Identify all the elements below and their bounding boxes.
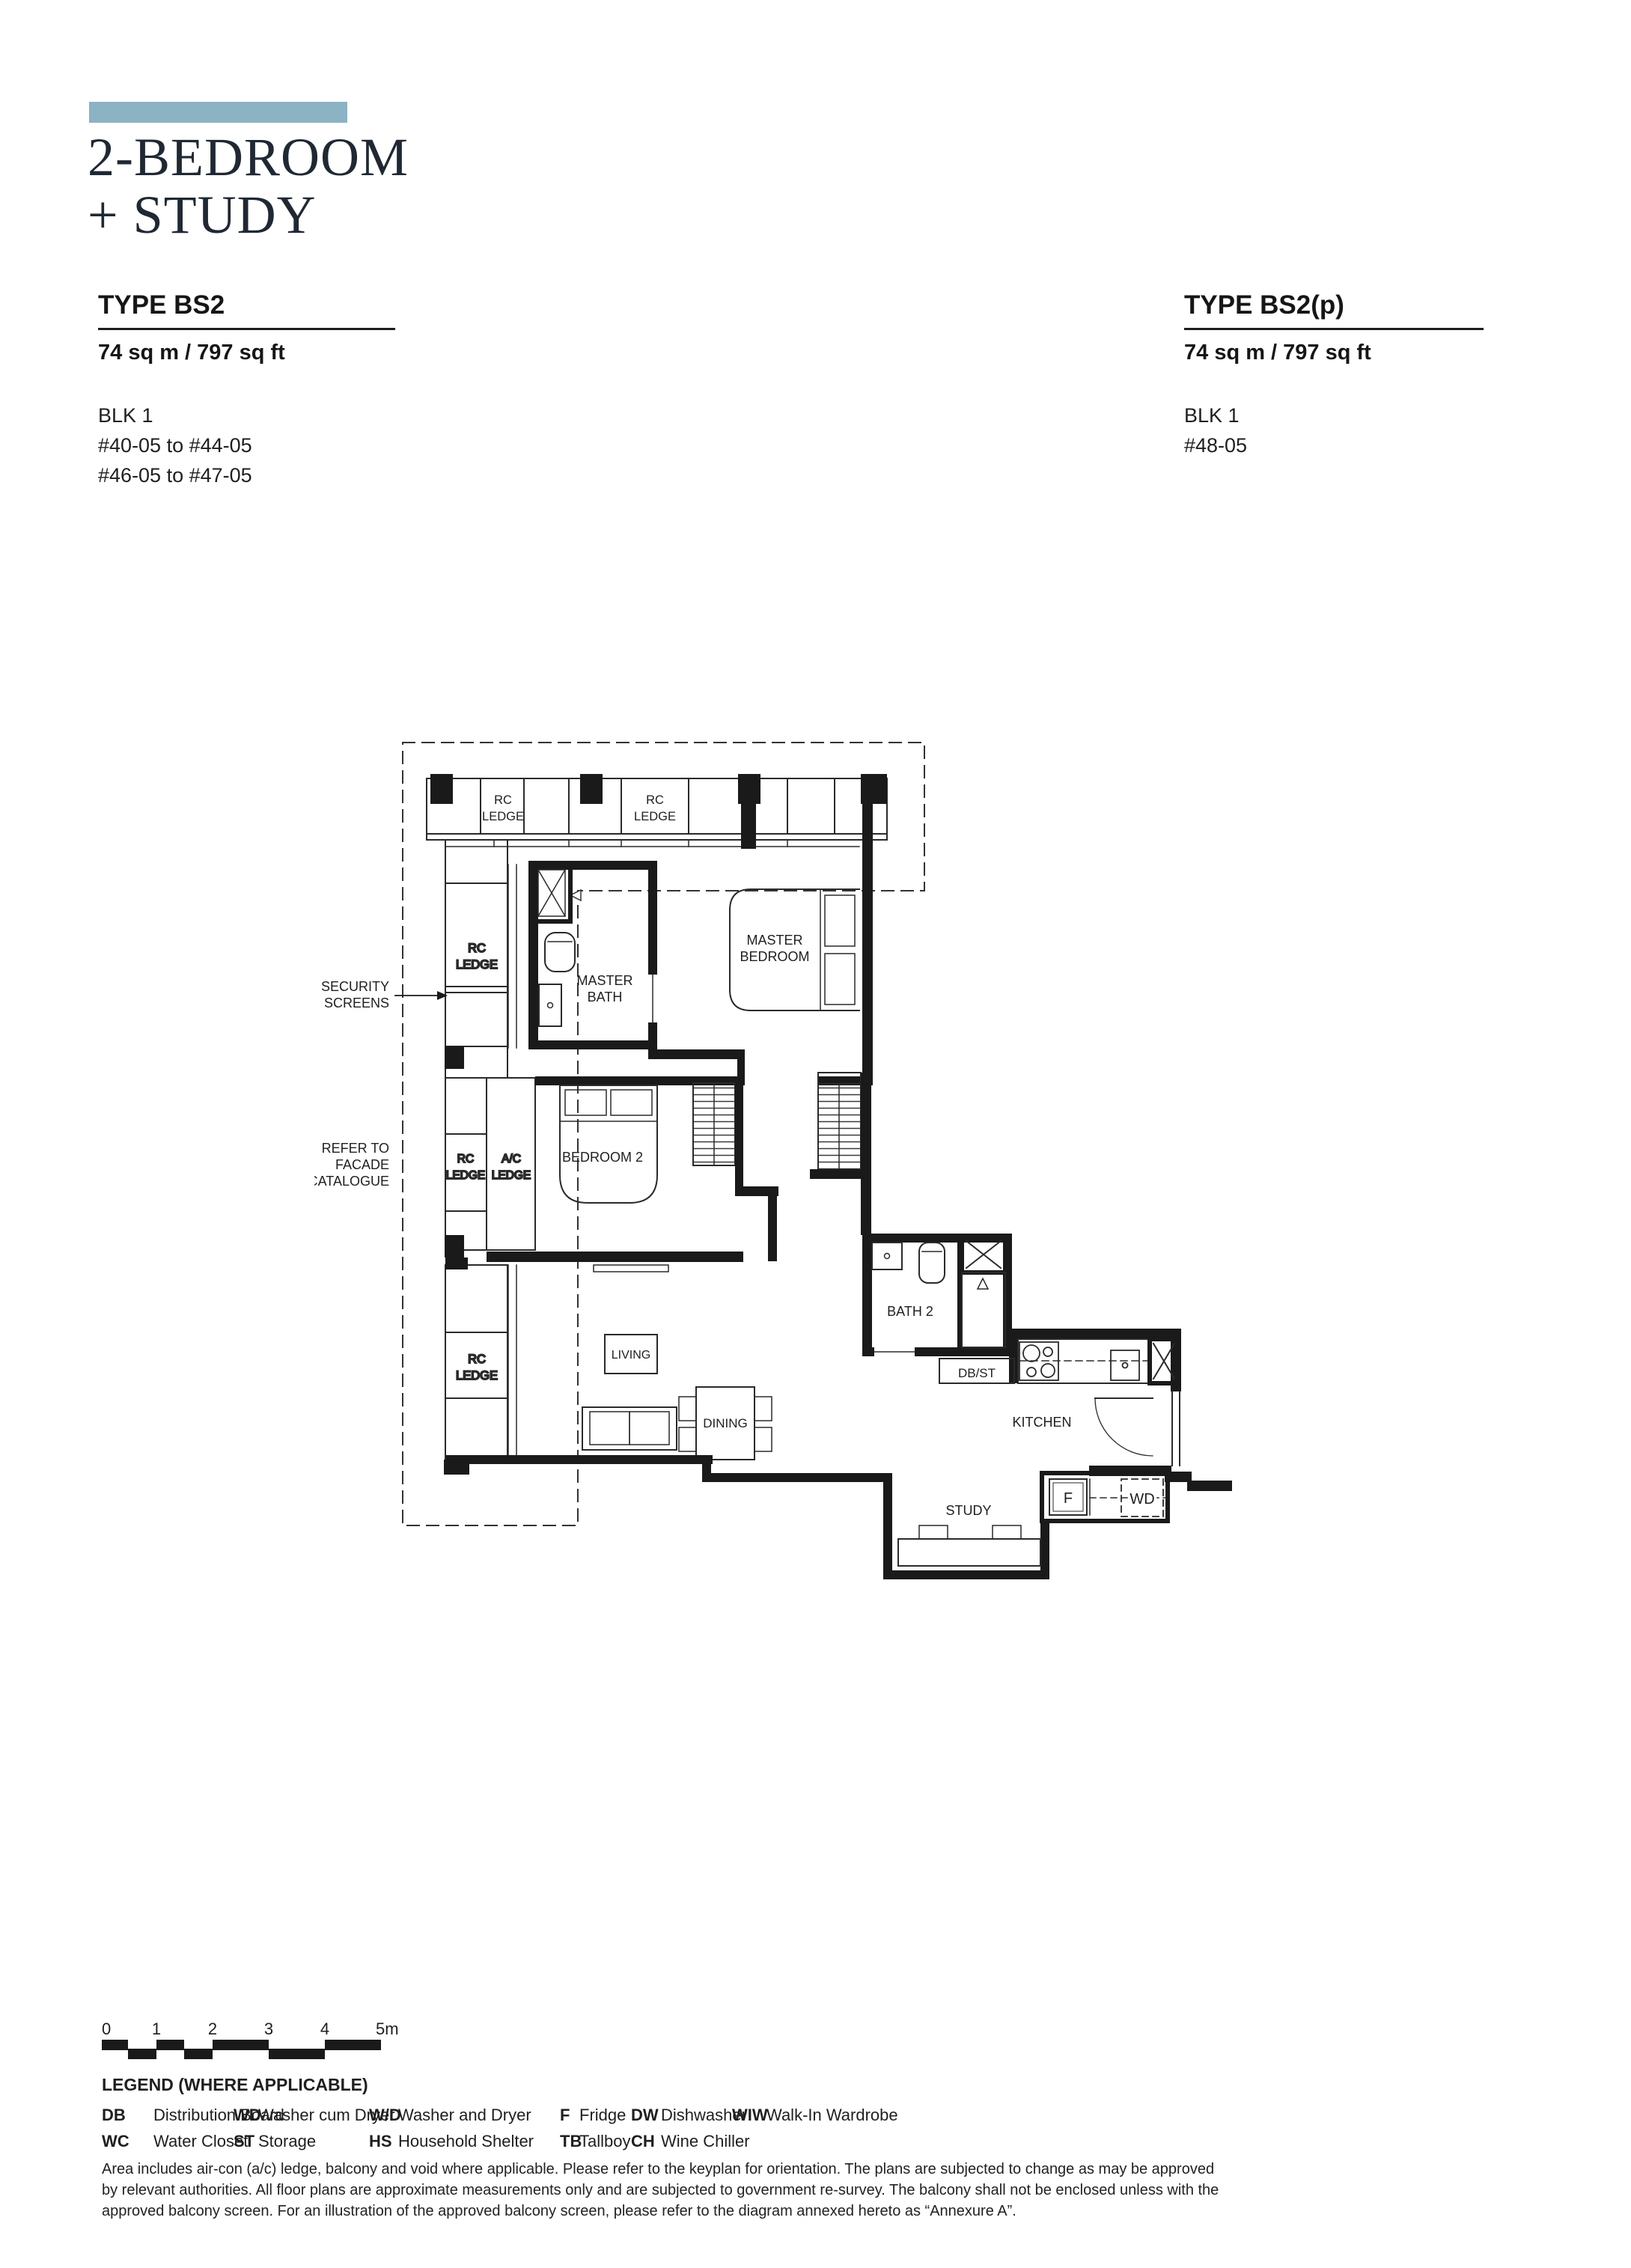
- fridge-label: F: [1064, 1490, 1073, 1507]
- legend-column: WIWWalk-In Wardrobe: [732, 2102, 898, 2128]
- scale-tick-1: 1: [152, 2019, 161, 2038]
- desk-chair-icon: [993, 1525, 1021, 1539]
- page-title: 2-BEDROOM+ STUDY: [88, 129, 409, 244]
- rc-ledge-top-right-label2: LEDGE: [634, 810, 676, 823]
- rc-ledge-top-left-label2: LEDGE: [482, 810, 524, 823]
- rc-ledge-top-right-label: RC: [646, 793, 664, 807]
- toilet-icon: [919, 1243, 945, 1283]
- appliance-cabinet: F WD: [1042, 1472, 1232, 1521]
- scale-tick-5m: 5m: [376, 2019, 399, 2038]
- sink-icon: [872, 1243, 902, 1269]
- floor-plan-drawing: RC LEDGE RC LEDGE RC LEDGE RC LEDGE A/C …: [314, 704, 1262, 1639]
- type-bs2p-heading: TYPE BS2(p): [1184, 290, 1484, 320]
- floorplan-page: 2-BEDROOM+ STUDY TYPE BS2 74 sq m / 797 …: [0, 0, 1631, 2268]
- facade-note-label3: CATALOGUE: [314, 1174, 389, 1189]
- security-screens-label2: SCREENS: [324, 996, 389, 1010]
- master-bedroom-label: MASTER: [746, 933, 802, 948]
- rc-ledge-left-upper-label: RC: [468, 942, 486, 955]
- left-ledges: RC LEDGE RC LEDGE A/C LEDGE RC LEDGE: [444, 840, 535, 1475]
- legend-abbr: W/D: [369, 2102, 398, 2128]
- legend-abbr: ST: [234, 2128, 258, 2154]
- legend-abbr: HS: [369, 2128, 398, 2154]
- type-bs2p-units-1: #48-05: [1184, 434, 1484, 457]
- spec-type-bs2: TYPE BS2 74 sq m / 797 sq ft BLK 1 #40-0…: [98, 290, 395, 487]
- washer-dryer-label: WD: [1129, 1491, 1154, 1508]
- study-label: STUDY: [945, 1503, 991, 1518]
- study: STUDY: [898, 1503, 1040, 1566]
- facade-note-label2: FACADE: [335, 1157, 389, 1172]
- legend-desc: Household Shelter: [398, 2132, 534, 2150]
- spec-type-bs2p: TYPE BS2(p) 74 sq m / 797 sq ft BLK 1 #4…: [1184, 290, 1484, 457]
- rc-ledge-band: RC LEDGE RC LEDGE: [427, 774, 887, 849]
- desk-chair-icon: [919, 1525, 948, 1539]
- ac-ledge-label: A/C: [502, 1153, 521, 1165]
- rc-ledge-left-lower-label2: LEDGE: [456, 1369, 498, 1383]
- kitchen-label: KITCHEN: [1012, 1415, 1071, 1430]
- legend-abbr: WD: [234, 2102, 258, 2128]
- sofa-icon: [582, 1407, 677, 1450]
- scale-bar: 0 1 2 3 4 5m: [100, 2015, 430, 2069]
- ac-ledge-label2: LEDGE: [492, 1169, 531, 1182]
- rc-ledge-top-left-label: RC: [494, 793, 512, 807]
- legend-desc: Washer and Dryer: [398, 2106, 531, 2124]
- scale-tick-3: 3: [264, 2019, 273, 2038]
- master-bath-walls: [528, 861, 657, 1049]
- dining-label: DINING: [703, 1416, 748, 1430]
- rc-ledge-mid-label: RC: [457, 1153, 474, 1165]
- type-bs2p-area: 74 sq m / 797 sq ft: [1184, 341, 1484, 365]
- dining-chair-icon: [679, 1397, 696, 1421]
- title-line-1: 2-BEDROOM: [88, 127, 409, 187]
- vent-shaft-icon: [533, 865, 570, 921]
- legend-desc: Walk-In Wardrobe: [766, 2106, 898, 2124]
- legend-abbr: WC: [102, 2128, 153, 2154]
- rc-ledge-left-upper-label2: LEDGE: [456, 958, 498, 972]
- legend-abbr: TB: [560, 2128, 579, 2154]
- heading-rule: [1184, 328, 1484, 330]
- plan-annotations: SECURITY SCREENS REFER TO FACADE CATALOG…: [314, 979, 448, 1189]
- dining-area: DINING: [679, 1387, 772, 1460]
- legend: LEGEND (WHERE APPLICABLE) DBDistribution…: [102, 2075, 1075, 2095]
- legend-abbr: CH: [631, 2128, 661, 2154]
- kitchen-sink-icon: [1111, 1350, 1139, 1380]
- rc-ledge-mid-label2: LEDGE: [446, 1169, 486, 1182]
- type-bs2-heading: TYPE BS2: [98, 290, 395, 320]
- dining-chair-icon: [754, 1397, 772, 1421]
- bath-2-label: BATH 2: [887, 1304, 933, 1319]
- desk-icon: [898, 1539, 1040, 1566]
- type-bs2p-block: BLK 1: [1184, 404, 1484, 427]
- living-label: LIVING: [612, 1349, 650, 1362]
- legend-abbr: F: [560, 2102, 579, 2128]
- disclaimer-text: Area includes air-con (a/c) ledge, balco…: [102, 2159, 1228, 2222]
- bedroom-2-label: BEDROOM 2: [562, 1150, 643, 1165]
- legend-abbr: DB: [102, 2102, 153, 2128]
- legend-desc: Tallboy: [579, 2132, 630, 2150]
- master-bath-label2: BATH: [588, 990, 623, 1005]
- legend-title: LEGEND (WHERE APPLICABLE): [102, 2075, 1075, 2095]
- type-bs2-units-1: #40-05 to #44-05: [98, 434, 395, 457]
- triangle-marker-icon: [978, 1278, 988, 1289]
- sink-icon: [539, 984, 561, 1026]
- facade-note-label: REFER TO: [322, 1141, 389, 1156]
- legend-abbr: WIW: [732, 2102, 766, 2128]
- shelter-room: [962, 1272, 1005, 1347]
- scale-tick-4: 4: [320, 2019, 329, 2038]
- title-line-2: + STUDY: [88, 185, 317, 245]
- security-screens-label: SECURITY: [321, 979, 389, 994]
- legend-column: FFridge TBTallboy: [560, 2102, 630, 2154]
- rc-ledge-left-lower-label: RC: [468, 1353, 486, 1366]
- tv-console-icon: [594, 1265, 668, 1272]
- master-bath-label: MASTER: [576, 973, 632, 988]
- heading-rule: [98, 328, 395, 330]
- legend-desc: Storage: [258, 2132, 316, 2150]
- legend-abbr: DW: [631, 2102, 661, 2128]
- dining-chair-icon: [679, 1427, 696, 1451]
- type-bs2-units-2: #46-05 to #47-05: [98, 464, 395, 487]
- bath-2: BATH 2 DB/ST: [862, 1234, 1014, 1383]
- kitchen: KITCHEN: [1009, 1329, 1181, 1476]
- door-swing-icon: [1095, 1398, 1153, 1456]
- bed-2-icon: [560, 1085, 657, 1203]
- type-bs2-block: BLK 1: [98, 404, 395, 427]
- accent-bar: [89, 102, 347, 123]
- scale-tick-2: 2: [208, 2019, 217, 2038]
- master-bedroom-label2: BEDROOM: [740, 949, 809, 964]
- living-room: LIVING: [582, 1335, 677, 1450]
- master-bath: MASTER BATH: [528, 861, 657, 1049]
- legend-desc: Wine Chiller: [661, 2132, 750, 2150]
- toilet-icon: [545, 933, 575, 972]
- dining-chair-icon: [754, 1427, 772, 1451]
- legend-column: W/DWasher and Dryer HSHousehold Shelter: [369, 2102, 534, 2154]
- scale-tick-0: 0: [102, 2019, 111, 2038]
- corridor-wardrobes: [693, 1073, 871, 1261]
- db-st-label: DB/ST: [958, 1366, 996, 1380]
- legend-desc: Fridge: [579, 2106, 626, 2124]
- type-bs2-area: 74 sq m / 797 sq ft: [98, 341, 395, 365]
